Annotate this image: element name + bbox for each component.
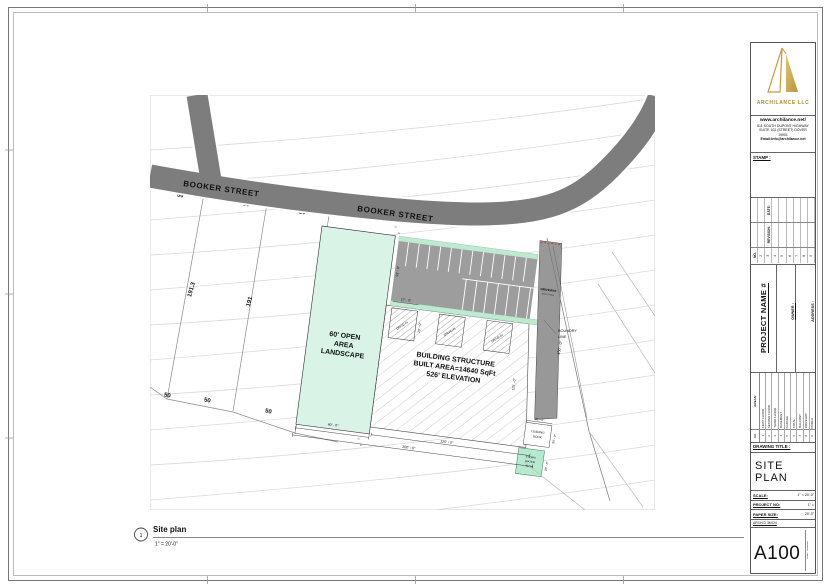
- drawing-title-section: DRAWING TITLE :: [751, 443, 815, 453]
- areas-title: AREAS:: [753, 395, 757, 407]
- project-no-label: PROJECT NO:: [753, 502, 780, 507]
- drawing-sheet: 191.3 191 50 50 50 50 50 50 BOOKER STREE…: [0, 0, 831, 588]
- title-block: ARCHILANCE LLC www.archilance.net/ 611 S…: [750, 42, 816, 574]
- revision-no-band: 1 2 3 4 5 6 7 8 9 NO.: [751, 248, 815, 263]
- area-item: BASEMENT: [779, 412, 783, 428]
- area-item: SECOND FLOOR: [767, 405, 771, 428]
- rev-no: 7: [795, 255, 799, 257]
- area-item: DRIVEWAY: [804, 413, 808, 428]
- paper-size-value: 20'-0": [805, 512, 814, 516]
- revision-table: DATE: REVISION: 1 2 3 4 5 6 7 8 9 NO.: [751, 198, 815, 265]
- project-section: PROJECT NAME # OWNER : ADDRESS :: [751, 265, 815, 373]
- sheet-side-text: SHEET NUMBER: [807, 541, 809, 559]
- areas-table: AREAS: NO. FIRST FLOOR1 SECOND FLOOR2 TH…: [751, 373, 815, 443]
- scale-value: 1" = 20'-0": [797, 493, 814, 497]
- areas-no-label: NO.: [753, 433, 757, 438]
- project-no-row: PROJECT NO: 1" =: [751, 501, 815, 511]
- view-scale: 1" = 20'-0": [155, 542, 178, 548]
- area-no: 8: [804, 435, 808, 437]
- date-column-label: DATE:: [767, 205, 771, 215]
- area-no: 1: [761, 435, 765, 437]
- stamp-section: STAMP :: [751, 153, 815, 198]
- archilance-logo-icon: [763, 46, 803, 94]
- logo-section: ARCHILANCE LLC: [751, 43, 815, 116]
- site-plan-drawing: 191.3 191 50 50 50 50 50 50 BOOKER STREE…: [0, 0, 831, 588]
- project-name: PROJECT NAME #: [759, 283, 768, 353]
- drawing-title: SITE PLAN: [751, 453, 815, 491]
- area-item: PORCH: [810, 418, 814, 428]
- area-item: BALCONY: [798, 414, 802, 428]
- boundary-label-2: LINE: [558, 335, 567, 339]
- company-email: Email:Info@archilance.net: [751, 137, 815, 141]
- paper-size-label: PAPER SIZE:: [753, 512, 778, 517]
- area-item: TOTAL: [792, 419, 796, 428]
- boundary-label-1: BOUNDRY: [558, 329, 577, 333]
- sheet-number-section: A100 SHEET NUMBER: [751, 528, 815, 573]
- area-no: 3: [773, 435, 777, 437]
- rev-no: 6: [788, 255, 792, 257]
- stamp-label: STAMP :: [753, 155, 815, 160]
- revision-column-label: REVISION:: [767, 226, 771, 243]
- area-no: 6: [792, 435, 796, 437]
- scale-label: SCALE:: [753, 493, 768, 498]
- paper-size-name-row: ARCH D 36X24: [751, 520, 815, 529]
- revision-desc-band: REVISION:: [751, 223, 815, 248]
- drawing-title-label: DRAWING TITLE :: [753, 444, 815, 449]
- area-item: FIRST FLOOR: [761, 409, 765, 428]
- paper-size-row: PAPER SIZE: 20'-0": [751, 510, 815, 520]
- rev-no: 8: [802, 255, 806, 257]
- owner-label: OWNER :: [791, 303, 795, 320]
- contact-section: www.archilance.net/ 611 SOUTH DUPONT HIG…: [751, 116, 815, 153]
- project-no-value: 1" =: [808, 503, 814, 507]
- rev-no: 3: [766, 255, 770, 257]
- view-title: 1 Site plan 1" = 20'-0": [135, 525, 745, 548]
- scale-row: SCALE: 1" = 20'-0": [751, 491, 815, 501]
- address-label: ADDRESS :: [811, 301, 815, 322]
- area-no: 7: [798, 435, 802, 437]
- paper-size-name: ARCH D 36X24: [753, 521, 815, 525]
- sheet-side-strip: SHEET NUMBER: [805, 530, 809, 571]
- revision-date-band: DATE:: [751, 198, 815, 223]
- company-name: ARCHILANCE LLC: [751, 100, 815, 106]
- view-number: 1: [139, 533, 142, 539]
- rev-no: 5: [780, 255, 784, 257]
- rev-no: 2: [759, 255, 763, 257]
- area-no: 5: [785, 435, 789, 437]
- area-no: 2: [767, 435, 771, 437]
- sheet-number: A100: [754, 543, 800, 565]
- area-item: GARAGE: [785, 416, 789, 428]
- view-title-text: Site plan: [153, 525, 186, 534]
- no-column-label: NO.: [753, 252, 757, 258]
- area-no: 9: [810, 435, 814, 437]
- rev-no: 9: [809, 255, 813, 257]
- drawing-title-text: SITE PLAN: [755, 460, 815, 484]
- area-item: THIRD FLOOR: [773, 408, 777, 428]
- rev-no: 4: [773, 255, 777, 257]
- area-no: 4: [779, 435, 783, 437]
